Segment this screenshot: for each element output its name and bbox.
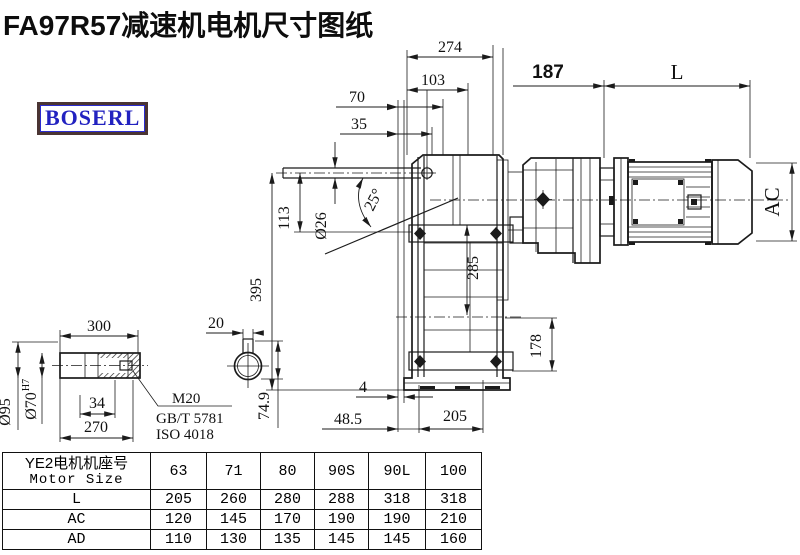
table-cell: 145 bbox=[315, 530, 369, 550]
table-cell: 160 bbox=[426, 530, 482, 550]
row-label: AC bbox=[3, 510, 151, 530]
technical-drawing: 274 103 70 35 187 L bbox=[0, 0, 800, 452]
dim-35-label: 35 bbox=[351, 116, 367, 133]
table-cell: 135 bbox=[261, 530, 315, 550]
table-cell: 210 bbox=[426, 510, 482, 530]
table-row: L 205 260 280 288 318 318 bbox=[3, 490, 482, 510]
gearbox-body bbox=[276, 155, 524, 390]
dim-dia95-label: Ø95 bbox=[0, 398, 14, 426]
dim-285-label: 285 bbox=[465, 256, 482, 280]
shaft-detail: 300 Ø95 Ø70 H7 34 270 M20 GB/T 578 bbox=[0, 318, 232, 443]
r57-reducer bbox=[508, 158, 614, 263]
table-cell: 90L bbox=[369, 453, 426, 490]
dim-395-label: 395 bbox=[248, 278, 265, 302]
table-cell: 318 bbox=[426, 490, 482, 510]
motor bbox=[430, 158, 788, 245]
dim-70-label: 70 bbox=[349, 89, 365, 106]
table-cell: 190 bbox=[315, 510, 369, 530]
dim-205-label: 205 bbox=[443, 408, 467, 425]
table-cell: 110 bbox=[151, 530, 207, 550]
table-cell: 170 bbox=[261, 510, 315, 530]
table-cell: 205 bbox=[151, 490, 207, 510]
dim-113-label: 113 bbox=[276, 206, 293, 229]
dim-74_9-label: 74.9 bbox=[256, 392, 273, 420]
dim-20-label: 20 bbox=[208, 315, 224, 332]
dim-dia70-tolerance: H7 bbox=[21, 379, 32, 391]
note-m20: M20 bbox=[172, 391, 200, 407]
dim-AC-label: AC bbox=[760, 187, 784, 216]
table-header-row: YE2电机机座号 Motor Size 63 71 80 90S 90L 100 bbox=[3, 453, 482, 490]
note-iso-standard: ISO 4018 bbox=[156, 427, 214, 443]
table-cell: 71 bbox=[207, 453, 261, 490]
right-dimensions: 285 178 AC bbox=[465, 163, 797, 371]
table-cell: 80 bbox=[261, 453, 315, 490]
table-cell: 145 bbox=[369, 530, 426, 550]
table-cell: 90S bbox=[315, 453, 369, 490]
dim-270-label: 270 bbox=[84, 419, 108, 436]
motor-size-table: YE2电机机座号 Motor Size 63 71 80 90S 90L 100… bbox=[2, 452, 482, 550]
dim-187-label: 187 bbox=[532, 62, 564, 83]
table-cell: 260 bbox=[207, 490, 261, 510]
dim-dia26-label: Ø26 bbox=[313, 212, 330, 240]
header-cn: YE2电机机座号 bbox=[3, 455, 150, 472]
table-row: AD 110 130 135 145 145 160 bbox=[3, 530, 482, 550]
dim-103-label: 103 bbox=[421, 72, 445, 89]
dim-274-label: 274 bbox=[438, 39, 462, 56]
table-cell: 280 bbox=[261, 490, 315, 510]
dim-4-label: 4 bbox=[359, 379, 367, 396]
table-cell: 120 bbox=[151, 510, 207, 530]
table-cell: 130 bbox=[207, 530, 261, 550]
table-header-motor-size: YE2电机机座号 Motor Size bbox=[3, 453, 151, 490]
table-cell: 190 bbox=[369, 510, 426, 530]
page: FA97R57减速机电机尺寸图纸 BOSERL bbox=[0, 0, 800, 555]
dim-34-label: 34 bbox=[89, 395, 105, 412]
table-cell: 288 bbox=[315, 490, 369, 510]
dim-25deg-label: 25° bbox=[361, 186, 386, 214]
dim-dia70-label: Ø70 bbox=[23, 392, 40, 420]
table-cell: 100 bbox=[426, 453, 482, 490]
table-row: AC 120 145 170 190 190 210 bbox=[3, 510, 482, 530]
extension-lines bbox=[398, 45, 750, 432]
dim-178-label: 178 bbox=[528, 334, 545, 358]
dim-48_5-label: 48.5 bbox=[334, 411, 362, 428]
table-cell: 145 bbox=[207, 510, 261, 530]
header-en: Motor Size bbox=[3, 472, 150, 488]
note-gb-standard: GB/T 5781 bbox=[156, 411, 224, 427]
row-label: AD bbox=[3, 530, 151, 550]
table-cell: 63 bbox=[151, 453, 207, 490]
row-label: L bbox=[3, 490, 151, 510]
dim-300-label: 300 bbox=[87, 318, 111, 335]
table-cell: 318 bbox=[369, 490, 426, 510]
dim-L-label: L bbox=[671, 60, 684, 84]
left-dimensions: 25° Ø26 113 395 bbox=[248, 142, 412, 390]
